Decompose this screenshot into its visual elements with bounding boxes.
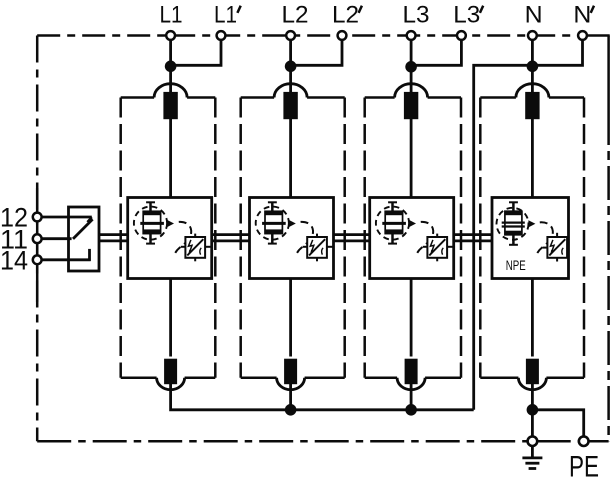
svg-text:PE: PE <box>569 451 599 480</box>
svg-text:N: N <box>573 2 591 29</box>
svg-text:L3: L3 <box>403 2 430 29</box>
svg-text:14: 14 <box>0 245 28 275</box>
svg-text:L3: L3 <box>453 2 480 29</box>
svg-text:N: N <box>525 2 543 29</box>
svg-text:L2: L2 <box>332 2 359 29</box>
svg-text:L1: L1 <box>160 2 183 29</box>
svg-text:L2: L2 <box>282 2 309 29</box>
svg-text:NPE: NPE <box>506 257 526 273</box>
svg-text:L1: L1 <box>214 2 237 29</box>
